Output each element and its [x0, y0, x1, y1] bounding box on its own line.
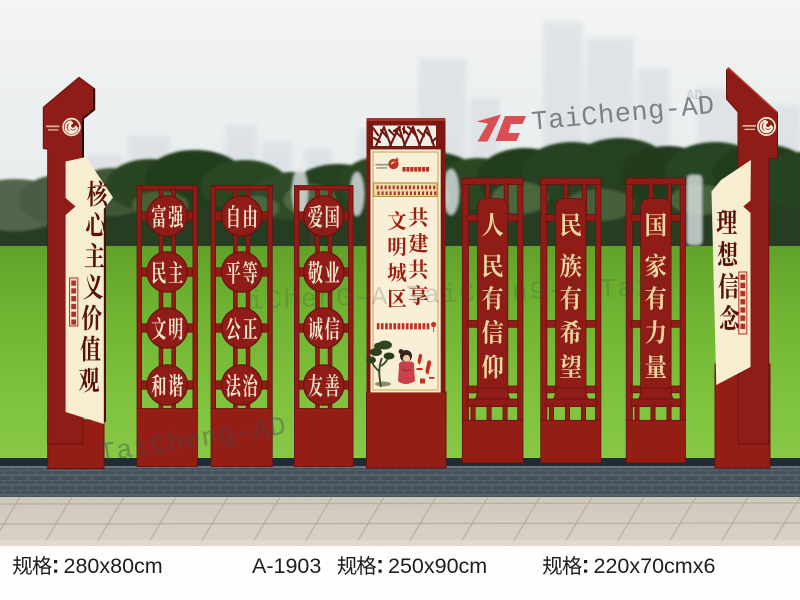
- svg-text:220x70cmx6: 220x70cmx6: [594, 554, 716, 578]
- svg-text:AD: AD: [686, 88, 703, 104]
- svg-text:280x80cm: 280x80cm: [64, 554, 163, 578]
- svg-text:A-1903: A-1903: [252, 554, 321, 578]
- svg-text:250x90cm: 250x90cm: [388, 554, 487, 578]
